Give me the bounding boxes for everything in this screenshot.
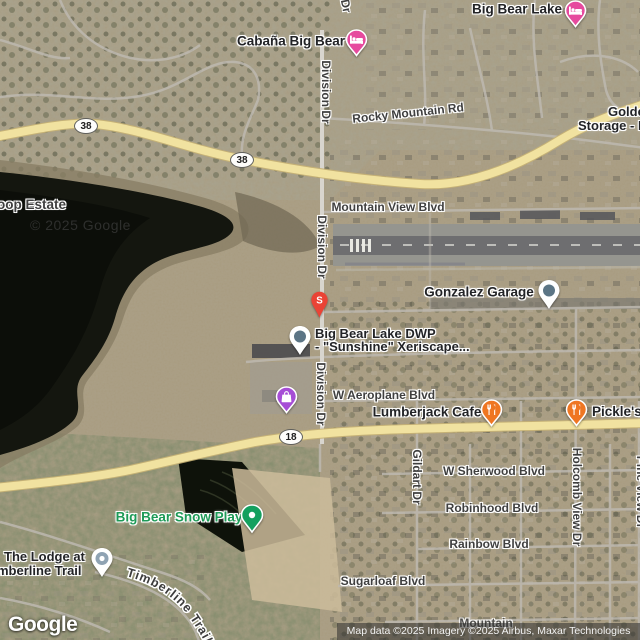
poi-label-lodge-line2[interactable]: mberline Trail — [0, 564, 82, 577]
poi-label-gonzalez-garage[interactable]: Gonzalez Garage — [424, 286, 534, 299]
generic-pin-gonzalez-garage[interactable] — [538, 280, 560, 310]
street-label-rainbow-blvd: Rainbow Blvd — [449, 537, 528, 551]
pin-letter: S — [316, 295, 323, 306]
poi-label-lumberjack-cafe[interactable]: Lumberjack Cafe — [373, 406, 482, 419]
route-badge-number: 38 — [80, 121, 91, 132]
street-label-w-aeroplane-blvd: W Aeroplane Blvd — [333, 388, 435, 402]
attraction-marker-snow-play[interactable] — [240, 504, 264, 534]
pin-dot-icon — [543, 285, 555, 297]
lodging-marker-big-bear-lake[interactable] — [564, 0, 587, 28]
lodging-marker-cabana[interactable] — [345, 29, 368, 57]
street-label-gildart-dr: Gildart Dr — [410, 449, 424, 504]
route-badge-number: 38 — [236, 155, 247, 166]
poi-label-golden-storage-line1[interactable]: Golde — [608, 105, 640, 118]
svg-text:Timberline Trail: Timberline Trail — [125, 565, 215, 640]
pin-dot-icon — [294, 331, 306, 343]
street-label-division-dr-mid: Division Dr — [315, 215, 329, 278]
route-badge-number: 18 — [285, 432, 296, 443]
area-label-oop-estate: oop Estate — [0, 197, 66, 212]
poi-label-pickles[interactable]: Pickle's — [592, 405, 640, 418]
google-logo[interactable]: Google — [8, 613, 77, 637]
shopping-marker[interactable] — [275, 386, 298, 414]
street-label-timberline-trail: Timberline Trail — [100, 560, 360, 640]
street-label-pine-view-dr: Pine View Dr — [634, 456, 640, 528]
poi-label-dwp-line2[interactable]: - "Sunshine" Xeriscape... — [315, 340, 470, 353]
search-result-pin[interactable]: S — [310, 291, 329, 319]
street-label-w-sherwood-blvd: W Sherwood Blvd — [443, 464, 545, 478]
restaurant-marker-pickles[interactable] — [565, 399, 588, 427]
street-label-holcomb-view-dr: Holcomb View Dr — [570, 448, 584, 546]
generic-pin-lodge-timberline[interactable] — [91, 548, 113, 578]
poi-label-big-bear-lake[interactable]: Big Bear Lake — [472, 3, 562, 16]
street-label-robinhood-blvd: Robinhood Blvd — [446, 501, 539, 515]
poi-label-big-bear-snow-play[interactable]: Big Bear Snow Play — [116, 511, 243, 524]
street-label-division-dr-south: Division Dr — [314, 362, 328, 425]
street-label-mountain-view-blvd: Mountain View Blvd — [331, 200, 444, 214]
street-label-division-dr-north: Division Dr — [319, 60, 333, 123]
route-badge-18: 18 — [279, 429, 303, 445]
pin-hole-icon — [249, 512, 255, 518]
pin-hole-icon — [99, 556, 104, 561]
generic-pin-dwp[interactable] — [289, 326, 311, 356]
poi-label-lodge-line1[interactable]: The Lodge at — [4, 550, 85, 563]
poi-label-golden-storage-line2[interactable]: Storage - B — [578, 119, 640, 132]
poi-label-cabana-big-bear[interactable]: Cabaña Big Bear — [237, 35, 345, 48]
map-canvas[interactable]: © 2025 Google Google Map data ©2025 Imag… — [0, 0, 640, 640]
map-attribution: Map data ©2025 Imagery ©2025 Airbus, Max… — [337, 623, 640, 640]
route-badge-38-b: 38 — [230, 152, 254, 168]
restaurant-marker-lumberjack[interactable] — [480, 399, 503, 427]
imagery-watermark: © 2025 Google — [30, 217, 131, 233]
route-badge-38: 38 — [74, 118, 98, 134]
